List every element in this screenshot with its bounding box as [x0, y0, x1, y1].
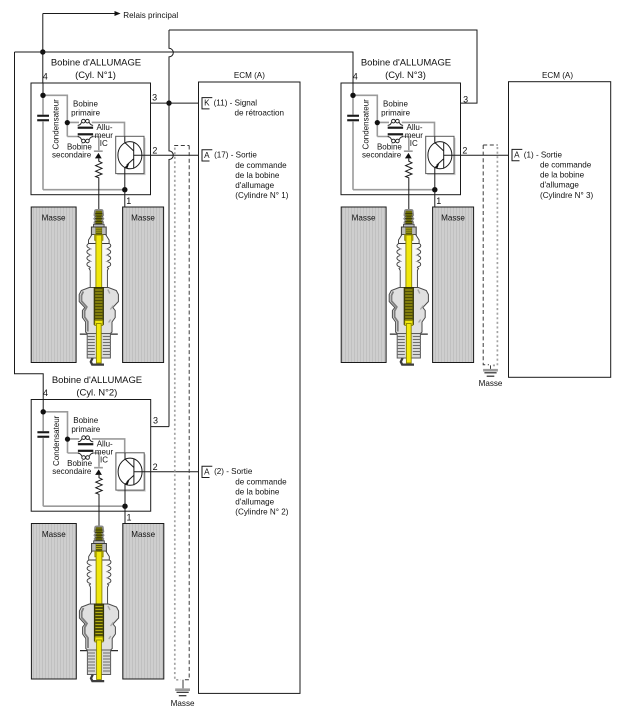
svg-text:Masse: Masse [171, 699, 195, 708]
svg-text:K: K [204, 99, 210, 108]
svg-text:(Cyl. N°3): (Cyl. N°3) [385, 70, 426, 81]
svg-text:d'allumage: d'allumage [540, 181, 579, 190]
svg-text:de la bobine: de la bobine [235, 171, 280, 180]
svg-text:Masse: Masse [131, 530, 155, 539]
svg-text:3: 3 [153, 416, 158, 426]
svg-text:Bobine d'ALLUMAGE: Bobine d'ALLUMAGE [51, 58, 141, 69]
svg-text:Masse: Masse [131, 214, 155, 223]
svg-text:(1) - Sortie: (1) - Sortie [524, 150, 563, 159]
svg-text:(Cyl. N°1): (Cyl. N°1) [75, 70, 116, 81]
svg-text:Masse: Masse [479, 379, 503, 388]
svg-text:(2) - Sortie: (2) - Sortie [214, 467, 253, 476]
svg-text:Masse: Masse [441, 214, 465, 223]
svg-text:Masse: Masse [42, 530, 66, 539]
svg-text:Bobine d'ALLUMAGE: Bobine d'ALLUMAGE [52, 375, 142, 386]
svg-text:de commande: de commande [235, 161, 287, 170]
svg-text:(Cylindre N° 2): (Cylindre N° 2) [235, 508, 288, 517]
svg-text:3: 3 [463, 94, 468, 104]
svg-text:de commande: de commande [540, 161, 592, 170]
svg-text:A: A [514, 151, 520, 160]
svg-text:A: A [204, 467, 210, 476]
svg-text:Relais principal: Relais principal [123, 11, 178, 20]
svg-text:ECM (A): ECM (A) [542, 71, 573, 80]
svg-text:3: 3 [152, 93, 157, 103]
svg-text:(17) - Sortie: (17) - Sortie [214, 151, 257, 160]
svg-text:A: A [204, 151, 210, 160]
svg-text:de la bobine: de la bobine [540, 171, 585, 180]
svg-text:(Cylindre N° 1): (Cylindre N° 1) [235, 191, 288, 200]
svg-text:Masse: Masse [42, 214, 66, 223]
svg-text:ECM (A): ECM (A) [234, 71, 265, 80]
svg-text:Bobine d'ALLUMAGE: Bobine d'ALLUMAGE [361, 58, 451, 69]
svg-text:de rétroaction: de rétroaction [235, 109, 285, 118]
svg-text:(11) - Signal: (11) - Signal [214, 99, 258, 108]
svg-text:de la bobine: de la bobine [235, 487, 280, 496]
svg-text:(Cylindre N° 3): (Cylindre N° 3) [540, 191, 593, 200]
svg-text:d'allumage: d'allumage [235, 181, 274, 190]
svg-text:Masse: Masse [352, 214, 376, 223]
svg-text:d'allumage: d'allumage [235, 498, 274, 507]
svg-text:(Cyl. N°2): (Cyl. N°2) [76, 387, 117, 398]
svg-text:de commande: de commande [235, 477, 287, 486]
